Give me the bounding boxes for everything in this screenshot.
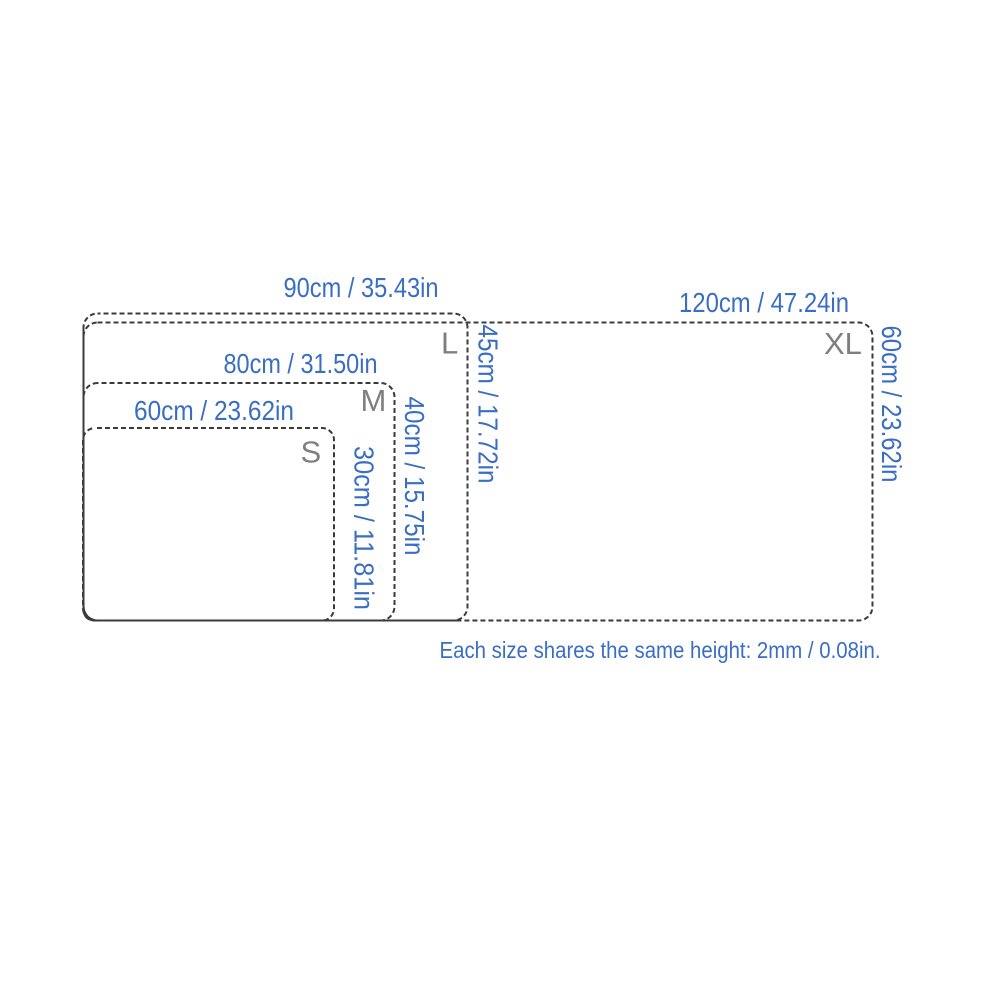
svg-text:60cm / 23.62in: 60cm / 23.62in <box>134 395 294 426</box>
svg-text:60cm / 23.62in: 60cm / 23.62in <box>876 326 907 483</box>
svg-text:45cm / 17.72in: 45cm / 17.72in <box>473 325 504 484</box>
svg-text:120cm / 47.24in: 120cm / 47.24in <box>679 287 849 318</box>
svg-text:40cm / 15.75in: 40cm / 15.75in <box>399 397 430 556</box>
svg-text:XL: XL <box>824 326 862 361</box>
svg-text:S: S <box>301 435 322 470</box>
svg-text:L: L <box>441 326 458 361</box>
svg-text:30cm / 11.81in: 30cm / 11.81in <box>349 446 380 610</box>
svg-text:90cm / 35.43in: 90cm / 35.43in <box>284 272 439 303</box>
svg-text:Each size shares the same heig: Each size shares the same height: 2mm / … <box>440 637 881 663</box>
svg-text:M: M <box>361 383 387 418</box>
svg-text:80cm / 31.50in: 80cm / 31.50in <box>224 348 378 379</box>
